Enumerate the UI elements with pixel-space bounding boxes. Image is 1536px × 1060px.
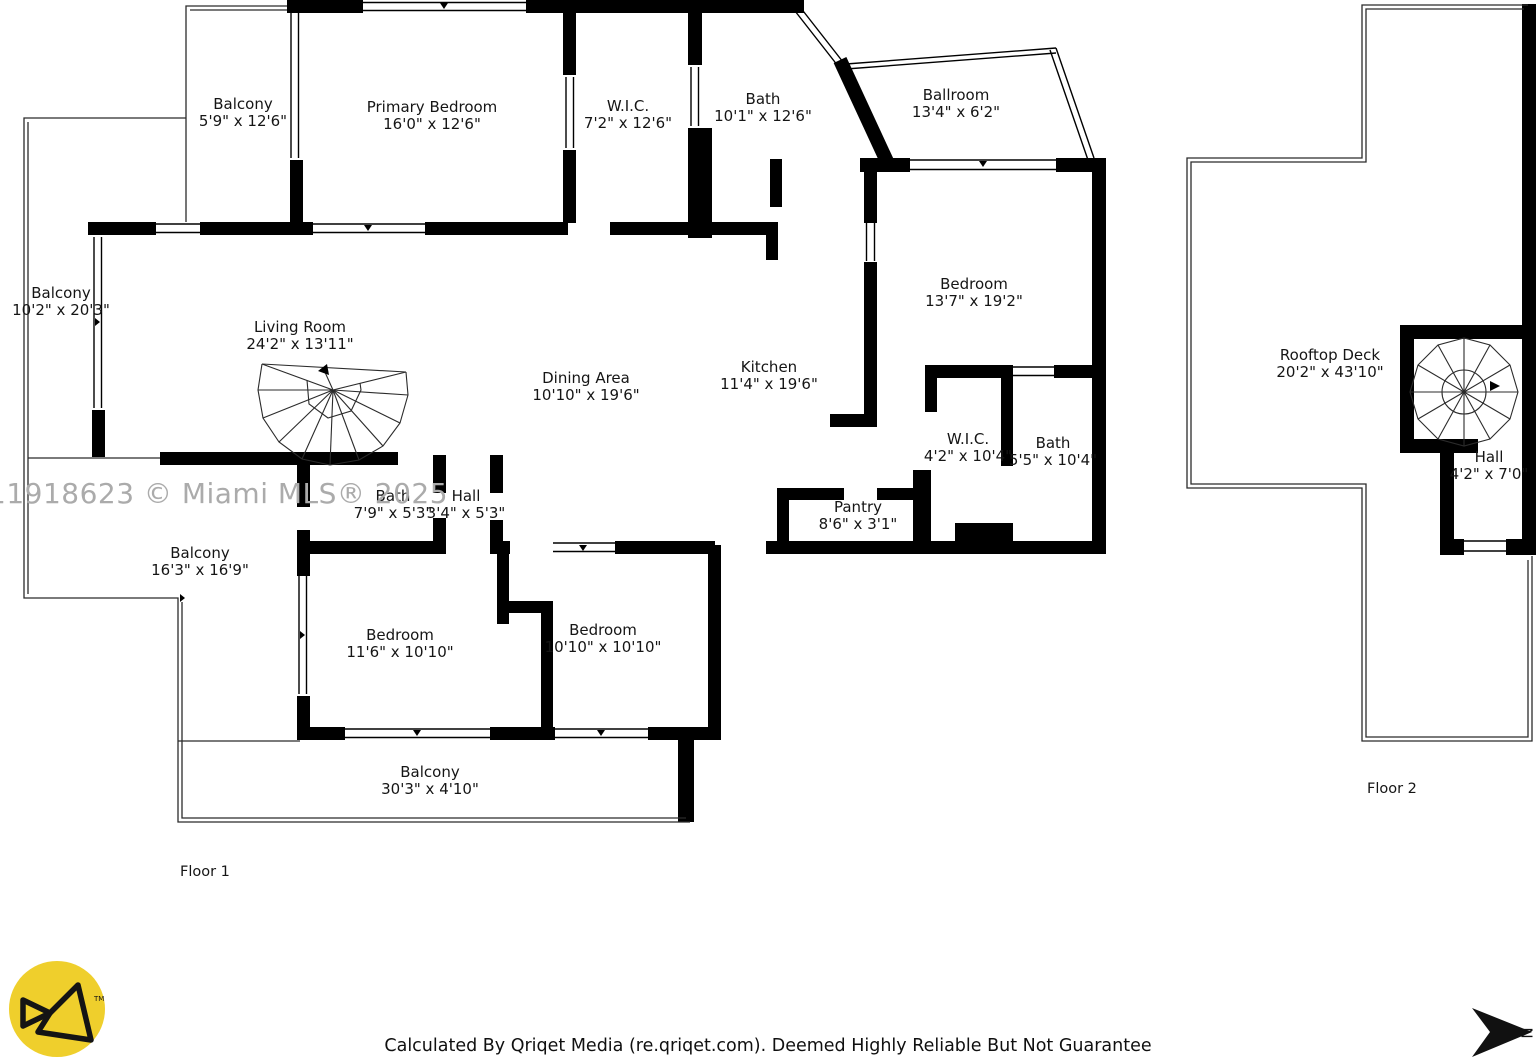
- room-label-bath-2: Bath5'5" x 10'4": [1009, 435, 1097, 470]
- floor2-windows: [1464, 541, 1506, 551]
- room-label-bedroom-right: Bedroom13'7" x 19'2": [925, 276, 1023, 311]
- footer-disclaimer: Calculated By Qriqet Media (re.qriqet.co…: [384, 1036, 1151, 1056]
- floor2-caption: Floor 2: [1367, 781, 1417, 797]
- logo-tm-text: TM: [93, 995, 104, 1003]
- compass-north-letter: N: [1518, 1027, 1536, 1038]
- floor2-spiral-staircase: [1410, 338, 1518, 446]
- room-label-rooftop-deck: Rooftop Deck20'2" x 43'10": [1276, 347, 1383, 382]
- room-label-primary-bedroom: Primary Bedroom16'0" x 12'6": [367, 99, 498, 134]
- mls-watermark: 11918623 © Miami MLS® 2025: [0, 477, 448, 510]
- room-label-wic-top: W.I.C.7'2" x 12'6": [584, 98, 672, 133]
- floor1-spiral-staircase: [258, 364, 408, 465]
- room-label-pantry: Pantry8'6" x 3'1": [819, 499, 898, 534]
- room-label-wic-2: W.I.C.4'2" x 10'4": [924, 431, 1012, 466]
- room-label-balcony-top: Balcony5'9" x 12'6": [199, 96, 287, 131]
- floor-plan-page: TM Balcony5'9" x 12'6" Primary Bedroom16…: [0, 0, 1536, 1060]
- room-label-dining-area: Dining Area10'10" x 19'6": [532, 370, 639, 405]
- floor1-caption: Floor 1: [180, 864, 230, 880]
- room-label-bath-top: Bath10'1" x 12'6": [714, 91, 812, 126]
- room-label-balcony-bottom-left: Balcony16'3" x 16'9": [151, 545, 249, 580]
- room-label-bedroom-1: Bedroom11'6" x 10'10": [346, 627, 453, 662]
- room-label-bedroom-2: Bedroom10'10" x 10'10": [545, 622, 662, 657]
- room-label-living-room: Living Room24'2" x 13'11": [246, 319, 353, 354]
- room-label-balcony-bottom: Balcony30'3" x 4'10": [381, 764, 479, 799]
- room-label-hall-2: Hall4'2" x 7'0": [1450, 449, 1529, 484]
- brand-logo: TM: [9, 961, 105, 1057]
- room-label-ballroom: Ballroom13'4" x 6'2": [912, 87, 1000, 122]
- floor-plan-drawing: TM: [0, 0, 1536, 1060]
- room-label-kitchen: Kitchen11'4" x 19'6": [720, 359, 818, 394]
- room-label-balcony-left: Balcony10'2" x 20'3": [12, 285, 110, 320]
